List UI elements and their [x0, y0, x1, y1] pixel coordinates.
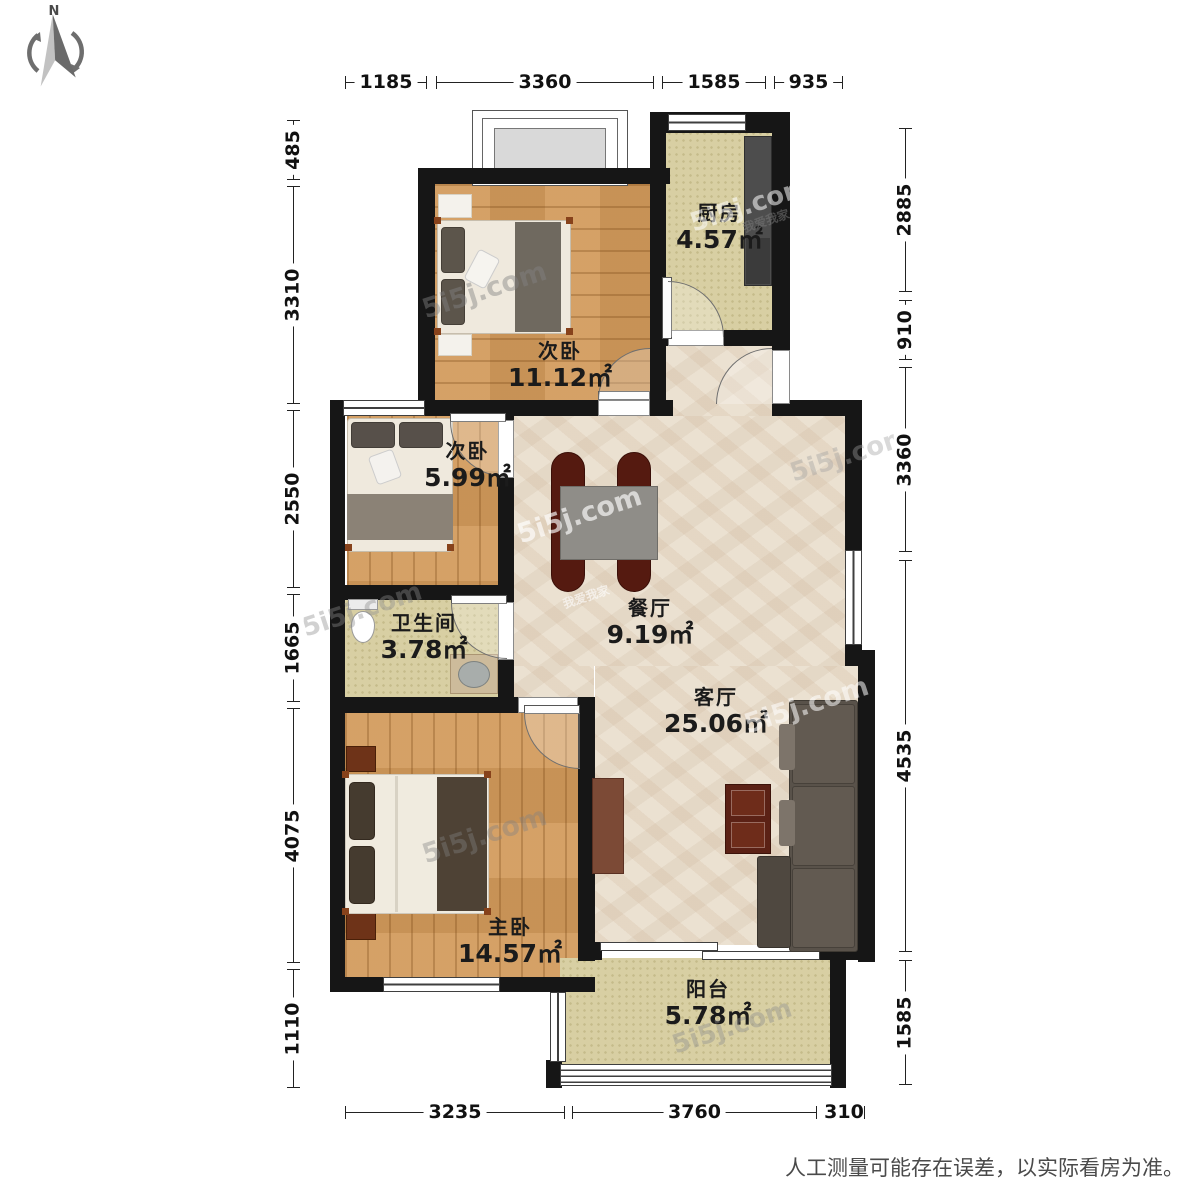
room-label-master: 主卧 14.57㎡	[450, 916, 570, 967]
room-name: 次卧	[538, 340, 582, 362]
pillow-master-a	[349, 782, 375, 840]
room-name: 厨房	[698, 202, 742, 224]
room-label-balcony: 阳台 5.78㎡	[658, 978, 758, 1029]
dim-top-1: 1185	[345, 82, 427, 83]
dim-right-1: 2885	[905, 128, 906, 292]
wall-left-exterior	[330, 400, 345, 992]
wall-living-bottom-left-stub	[578, 942, 602, 960]
room-area: 5.99㎡	[424, 465, 511, 491]
sink-basin	[458, 661, 490, 688]
room-name: 餐厅	[628, 597, 672, 619]
sofa-cushion-1	[792, 704, 855, 784]
dim-right-4: 4535	[905, 560, 906, 952]
bed-post	[566, 217, 573, 224]
room-label-bathroom: 卫生间 3.78㎡	[368, 612, 480, 663]
pillow-bedroom1-b	[441, 279, 465, 325]
wall-balcony-cap-right	[830, 1060, 846, 1088]
bed-post	[434, 217, 441, 224]
dim-right-2: 910	[905, 300, 906, 360]
bed-post	[342, 908, 349, 915]
pillow-master-b	[349, 846, 375, 904]
dim-top-2: 3360	[436, 82, 654, 83]
room-area: 3.78㎡	[381, 637, 468, 663]
sliding-door-panel-right	[702, 951, 820, 960]
dim-right-3: 3360	[905, 367, 906, 552]
coffee-table-panel-bottom	[731, 822, 765, 848]
sofa-cushion-2	[792, 786, 855, 866]
window-dining-right	[845, 550, 862, 645]
window-bedroom2	[343, 400, 425, 416]
nightstand-bedroom1-bottom	[438, 334, 472, 356]
dim-top-3: 1585	[662, 82, 766, 83]
room-label-kitchen: 厨房 4.57㎡	[662, 202, 777, 253]
room-area: 4.57㎡	[676, 227, 763, 253]
nightstand-bedroom1-top	[438, 194, 472, 218]
compass: N	[14, 2, 98, 94]
dining-table	[560, 486, 658, 560]
room-name: 客厅	[694, 686, 738, 708]
dim-bottom-1: 3235	[345, 1112, 565, 1113]
bed-post	[342, 771, 349, 778]
wall-balcony-right	[830, 958, 846, 1064]
room-area: 14.57㎡	[458, 941, 562, 967]
window-balcony-left	[550, 992, 566, 1062]
wall-bedroom1-top	[418, 168, 670, 184]
room-label-dining: 餐厅 9.19㎡	[595, 597, 705, 648]
floor-plan-canvas: 次卧 11.12㎡ 厨房 4.57㎡ 次卧 5.99㎡ 餐厅 9.19㎡ 卫生间…	[0, 0, 1200, 1200]
pillow-bedroom2-a	[351, 422, 395, 448]
room-area: 25.06㎡	[664, 711, 768, 737]
dim-left-1: 485	[293, 120, 294, 180]
room-area: 9.19㎡	[607, 622, 694, 648]
dim-right-5: 1585	[905, 960, 906, 1085]
room-name: 主卧	[488, 916, 532, 938]
window-kitchen	[668, 114, 746, 131]
toilet-tank	[348, 599, 378, 610]
sheet-fold-master	[395, 776, 398, 912]
wall-bedroom1-left	[418, 168, 435, 416]
sofa-pillow-2	[779, 800, 795, 846]
room-label-bedroom-second-small: 次卧 5.99㎡	[415, 440, 520, 491]
bed-post	[345, 544, 352, 551]
room-area: 11.12㎡	[508, 365, 612, 391]
dim-left-6: 1110	[293, 969, 294, 1088]
room-label-living: 客厅 25.06㎡	[656, 686, 776, 737]
disclaimer-text: 人工测量可能存在误差，以实际看房为准。	[785, 1152, 1184, 1182]
nightstand-master-bottom	[346, 912, 376, 940]
room-area: 5.78㎡	[665, 1003, 752, 1029]
bed-post	[447, 544, 454, 551]
sofa-chaise	[757, 856, 791, 948]
blanket-master	[437, 777, 487, 911]
bed-post	[566, 328, 573, 335]
dim-bottom-2: 3760	[572, 1112, 817, 1113]
pillow-bedroom1-a	[441, 227, 465, 273]
dim-left-2: 3310	[293, 186, 294, 404]
blanket-bedroom1	[515, 222, 561, 332]
coffee-table-panel-top	[731, 790, 765, 816]
window-master	[383, 977, 500, 992]
room-label-bedroom-second-large: 次卧 11.12㎡	[490, 340, 630, 391]
floor-dining-living-join	[514, 666, 594, 697]
nightstand-master-top	[346, 746, 376, 772]
door-gap-entry	[772, 350, 790, 404]
compass-n-label: N	[49, 4, 60, 19]
room-name: 卫生间	[391, 612, 457, 634]
blanket-bedroom2	[347, 494, 453, 540]
sliding-door-panel-left	[600, 942, 718, 951]
room-name: 阳台	[686, 978, 730, 1000]
dim-left-3: 2550	[293, 410, 294, 588]
bed-post	[484, 771, 491, 778]
tv-stand	[592, 778, 624, 874]
dim-bottom-3: 310	[823, 1112, 865, 1113]
room-name: 次卧	[446, 440, 490, 462]
dim-top-4: 935	[774, 82, 843, 83]
dim-left-5: 4075	[293, 708, 294, 963]
wall-living-right	[858, 650, 875, 962]
bed-post	[434, 328, 441, 335]
wall-kitchen-left	[650, 112, 666, 416]
dim-left-4: 1665	[293, 594, 294, 702]
sofa-cushion-3	[792, 868, 855, 948]
door-gap-bedroom1	[598, 400, 650, 416]
compass-icon: N	[14, 2, 98, 94]
window-balcony-bottom	[560, 1064, 832, 1086]
bed-post	[484, 908, 491, 915]
sofa-pillow-1	[779, 724, 795, 770]
